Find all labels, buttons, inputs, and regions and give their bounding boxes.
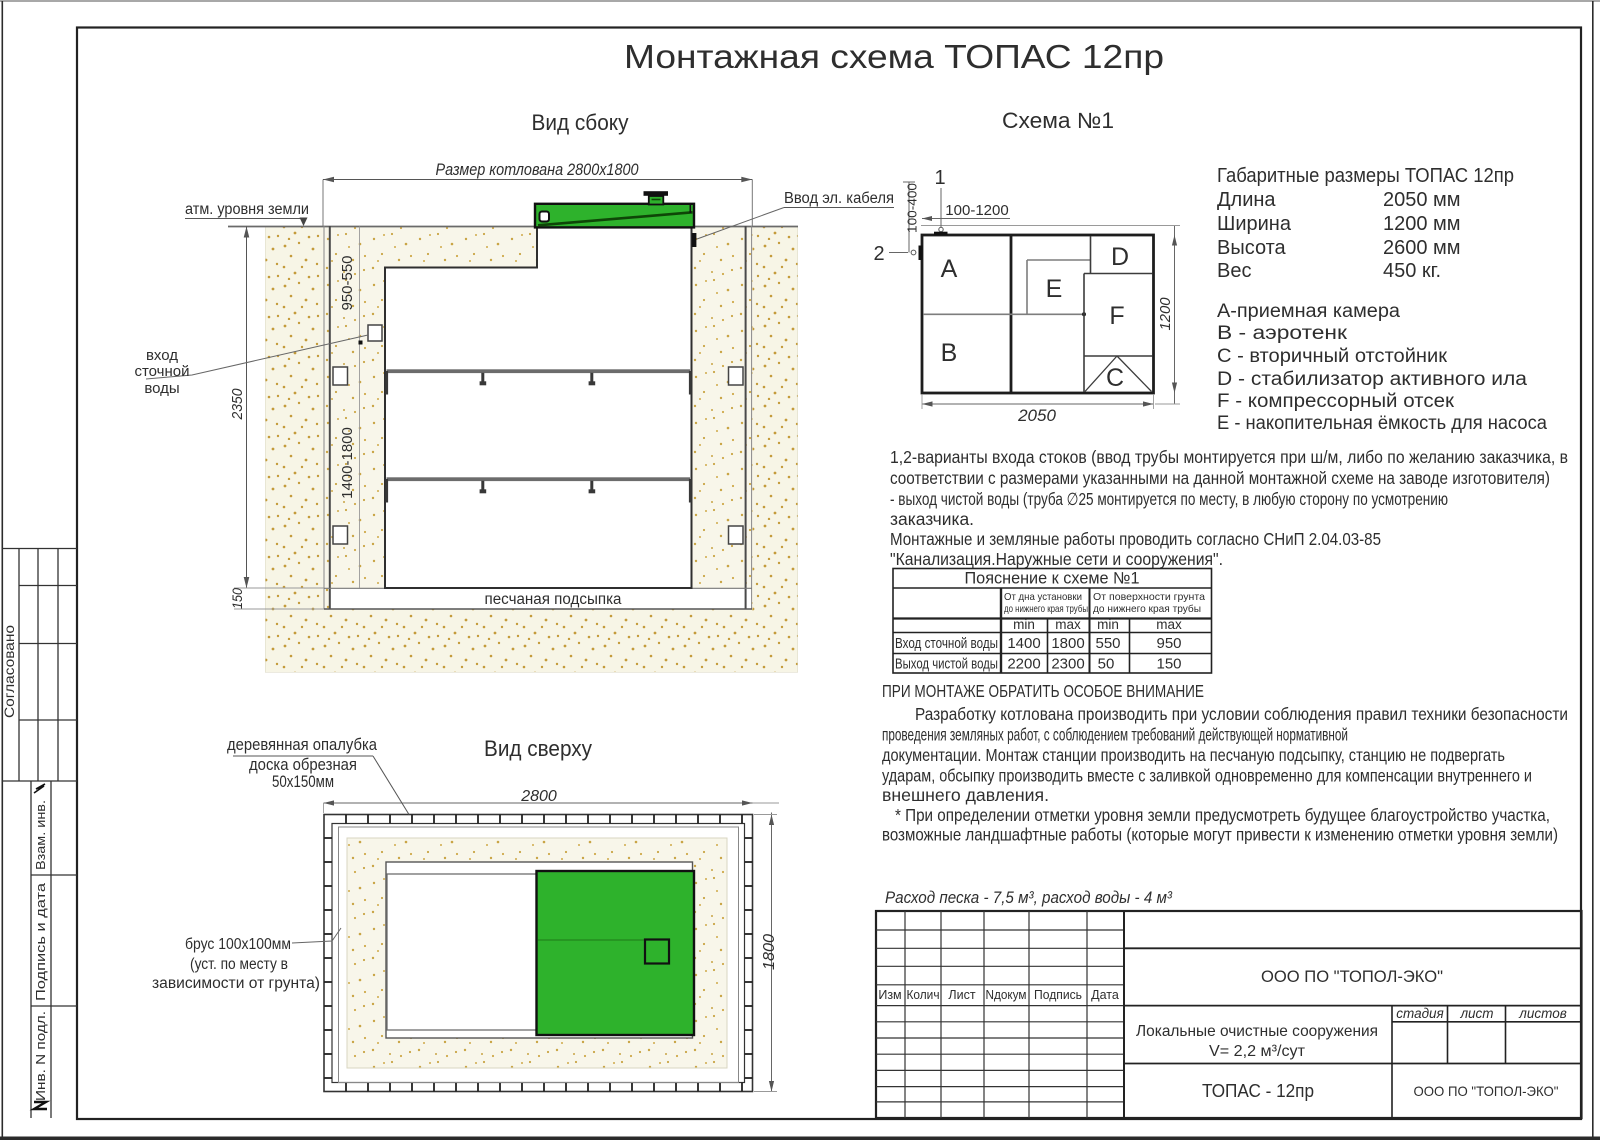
- svg-text:ударам, обсыпку производить вм: ударам, обсыпку производить вместе с зал…: [882, 766, 1532, 786]
- svg-text:Вид сверху: Вид сверху: [484, 736, 592, 761]
- svg-text:150: 150: [1156, 656, 1181, 673]
- svg-text:1200: 1200: [1157, 297, 1174, 331]
- svg-text:2050 мм: 2050 мм: [1383, 189, 1461, 211]
- svg-text:документации. Монтаж станции п: документации. Монтаж станции производить…: [882, 745, 1505, 765]
- svg-text:ТОПАС - 12пр: ТОПАС - 12пр: [1202, 1081, 1314, 1101]
- svg-text:заказчика.: заказчика.: [890, 509, 974, 529]
- svg-text:F: F: [1109, 302, 1124, 330]
- svg-text:max: max: [1055, 617, 1081, 632]
- svg-text:- выход чистой воды (труба ∅25: - выход чистой воды (труба ∅25 монтирует…: [890, 489, 1448, 509]
- svg-text:деревянная опалубка: деревянная опалубка: [227, 736, 378, 754]
- svg-text:A: A: [941, 255, 958, 283]
- svg-text:1800: 1800: [1051, 635, 1084, 652]
- svg-text:сточной: сточной: [134, 363, 189, 380]
- svg-text:Схема №1: Схема №1: [1002, 108, 1114, 133]
- svg-text:2200: 2200: [1007, 656, 1040, 673]
- svg-text:вход: вход: [146, 347, 178, 364]
- svg-text:100-400: 100-400: [905, 183, 920, 233]
- svg-text:950: 950: [1156, 635, 1181, 652]
- svg-text:Выход чистой воды: Выход чистой воды: [895, 657, 998, 673]
- svg-text:D: D: [1111, 243, 1129, 271]
- svg-text:Е - накопительная ёмкость для: Е - накопительная ёмкость для насоса: [1217, 413, 1547, 434]
- svg-text:лист: лист: [1459, 1006, 1493, 1021]
- svg-text:стадия: стадия: [1396, 1006, 1444, 1021]
- svg-text:max: max: [1156, 617, 1182, 632]
- svg-text:Дата: Дата: [1091, 988, 1119, 1002]
- svg-text:2350: 2350: [229, 388, 246, 421]
- svg-text:950-550: 950-550: [339, 255, 356, 310]
- svg-text:1,2-варианты входа стоков (вв: 1,2-варианты входа стоков (ввод трубы мо…: [890, 447, 1568, 467]
- svg-text:проведения земляных работ, с с: проведения земляных работ, с соблюдением…: [882, 725, 1348, 745]
- svg-text:Подпись и дата: Подпись и дата: [33, 882, 48, 1001]
- svg-text:Монтажная схема ТОПАС 12пр: Монтажная схема ТОПАС 12пр: [624, 38, 1164, 75]
- svg-text:1: 1: [934, 167, 945, 189]
- svg-text:ООО ПО "ТОПОЛ-ЭКО": ООО ПО "ТОПОЛ-ЭКО": [1414, 1083, 1559, 1099]
- svg-text:Длина: Длина: [1217, 189, 1276, 211]
- svg-text:min: min: [1097, 617, 1119, 632]
- svg-text:50х150мм: 50х150мм: [272, 773, 334, 791]
- svg-text:V= 2,2 м³/сут: V= 2,2 м³/сут: [1209, 1043, 1306, 1060]
- svg-text:Размер котлована 2800х1800: Размер котлована 2800х1800: [436, 160, 639, 179]
- svg-text:соответствии с размерами указа: соответствии с размерами указанными на д…: [890, 468, 1550, 488]
- svg-text:2800: 2800: [520, 788, 557, 805]
- svg-text:листов: листов: [1518, 1006, 1567, 1021]
- svg-text:А-приемная камера: А-приемная камера: [1217, 301, 1400, 322]
- svg-text:1200 мм: 1200 мм: [1383, 213, 1461, 235]
- svg-text:ПРИ МОНТАЖЕ ОБРАТИТЬ ОСОБОЕ ВН: ПРИ МОНТАЖЕ ОБРАТИТЬ ОСОБОЕ ВНИМАНИЕ: [882, 681, 1204, 701]
- svg-text:Локальные очистные сооружения: Локальные очистные сооружения: [1136, 1023, 1378, 1040]
- svg-text:Габаритные размеры ТОПАС 12пр: Габаритные размеры ТОПАС 12пр: [1217, 165, 1514, 187]
- svg-text:Колич: Колич: [907, 988, 940, 1002]
- svg-text:возможные ландшафтные работы (: возможные ландшафтные работы (которые мо…: [882, 825, 1558, 845]
- svg-text:F - компрессорный отсек: F - компрессорный отсек: [1217, 391, 1455, 412]
- svg-text:1400-1800: 1400-1800: [339, 427, 356, 499]
- svg-text:брус 100х100мм: брус 100х100мм: [185, 936, 291, 953]
- svg-text:воды: воды: [144, 380, 179, 397]
- svg-text:(уст. по месту в: (уст. по месту в: [190, 956, 288, 973]
- svg-text:Вход сточной воды: Вход сточной воды: [895, 636, 998, 652]
- svg-text:ООО ПО "ТОПОЛ-ЭКО": ООО ПО "ТОПОЛ-ЭКО": [1261, 968, 1443, 986]
- svg-text:Монтажные и земляные работы пр: Монтажные и земляные работы проводить со…: [890, 529, 1381, 549]
- svg-text:1400: 1400: [1007, 635, 1040, 652]
- svg-text:550: 550: [1095, 635, 1120, 652]
- svg-text:атм. уровня земли: атм. уровня земли: [185, 201, 309, 218]
- svg-text:доска обрезная: доска обрезная: [249, 756, 357, 774]
- svg-text:Nдокум: Nдокум: [986, 988, 1027, 1002]
- svg-text:2: 2: [873, 243, 884, 265]
- svg-text:"Канализация.Наружные сети и с: "Канализация.Наружные сети и сооружения"…: [890, 549, 1223, 569]
- svg-text:внешнего давления.: внешнего давления.: [882, 785, 1049, 805]
- svg-text:Изм: Изм: [878, 988, 901, 1002]
- svg-text:до нижнего края трубы: до нижнего края трубы: [1093, 603, 1201, 615]
- svg-text:В - аэротенк: В - аэротенк: [1217, 323, 1348, 344]
- svg-text:Инв. N подл.: Инв. N подл.: [33, 1011, 48, 1101]
- svg-text:450 кг.: 450 кг.: [1383, 260, 1441, 282]
- svg-text:C: C: [1106, 364, 1124, 392]
- svg-text:2300: 2300: [1051, 656, 1084, 673]
- svg-text:С - вторичный отстойник: С - вторичный отстойник: [1217, 346, 1448, 367]
- svg-text:Разработку котлована производи: Разработку котлована производить при усл…: [915, 704, 1568, 724]
- svg-text:зависимости от грунта): зависимости от грунта): [152, 975, 320, 992]
- svg-text:Высота: Высота: [1217, 237, 1287, 259]
- svg-text:min: min: [1013, 617, 1035, 632]
- svg-text:Пояснение к схеме №1: Пояснение к схеме №1: [965, 570, 1140, 588]
- svg-text:Ввод эл. кабеля: Ввод эл. кабеля: [784, 190, 894, 207]
- svg-text:песчаная подсыпка: песчаная подсыпка: [485, 591, 622, 608]
- svg-text:1800: 1800: [761, 934, 778, 970]
- svg-text:150: 150: [229, 588, 245, 609]
- svg-text:до нижнего края трубы: до нижнего края трубы: [1004, 603, 1088, 615]
- svg-text:Вид сбоку: Вид сбоку: [532, 110, 629, 135]
- svg-text:B: B: [941, 339, 958, 367]
- svg-text:Подпись: Подпись: [1034, 988, 1082, 1002]
- svg-text:От поверхности грунта: От поверхности грунта: [1093, 591, 1205, 603]
- svg-text:Взам. инв.: Взам. инв.: [33, 800, 48, 870]
- svg-text:100-1200: 100-1200: [945, 202, 1008, 219]
- svg-text:E: E: [1046, 275, 1063, 303]
- svg-text:Ширина: Ширина: [1217, 213, 1292, 235]
- svg-text:* При определении отметки уров: * При определении отметки уровня земли п…: [895, 805, 1550, 825]
- svg-text:Лист: Лист: [948, 988, 975, 1002]
- svg-text:От дна установки: От дна установки: [1004, 591, 1082, 603]
- svg-text:Согласовано: Согласовано: [2, 625, 17, 718]
- svg-text:D - стабилизатор активного ил: D - стабилизатор активного ила: [1217, 369, 1527, 390]
- svg-text:50: 50: [1098, 656, 1115, 673]
- svg-text:2050: 2050: [1017, 406, 1056, 425]
- svg-text:2600 мм: 2600 мм: [1383, 237, 1461, 259]
- svg-text:Расход песка - 7,5 м³, расход: Расход песка - 7,5 м³, расход воды - 4 м…: [885, 889, 1172, 907]
- svg-text:Вес: Вес: [1217, 260, 1251, 282]
